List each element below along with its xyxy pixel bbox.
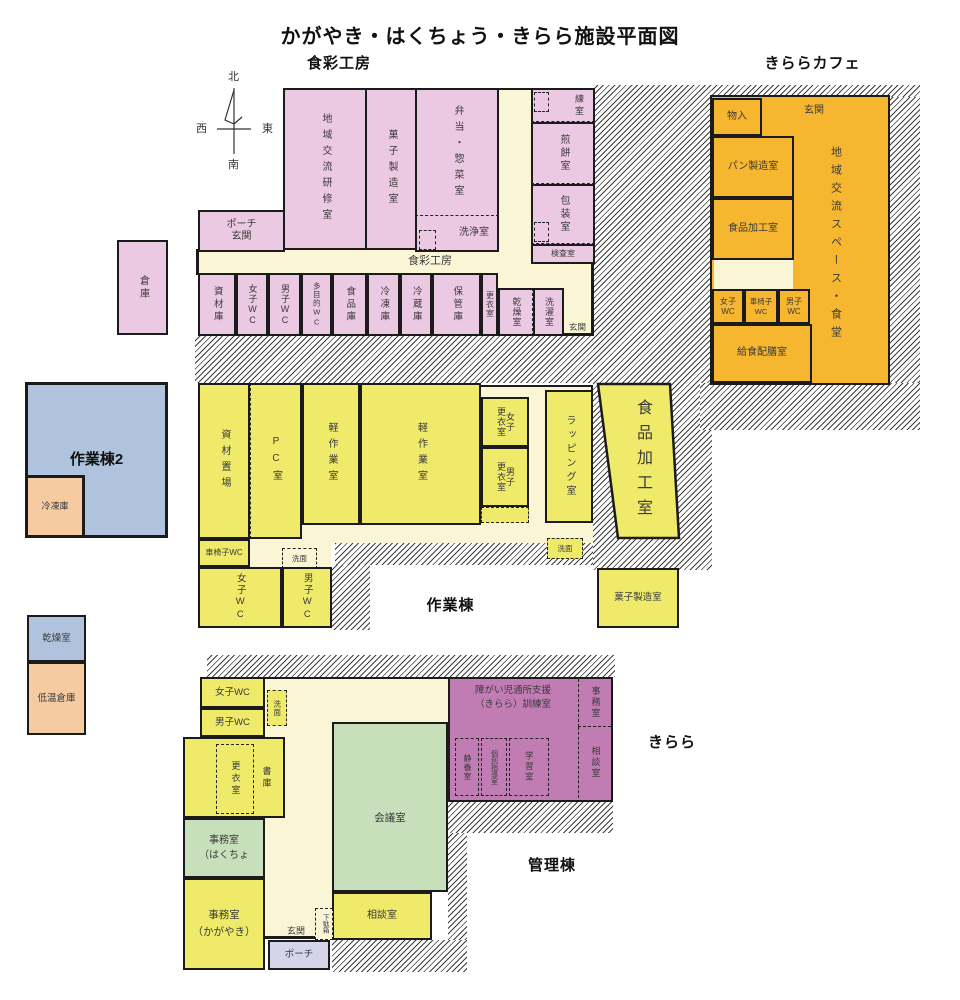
- room-reizoko: 冷蔵庫: [400, 273, 432, 336]
- room-joshi-koi: 女子 更衣室: [481, 397, 529, 447]
- room-shizai-okiba: 資材置場: [198, 383, 250, 539]
- label-kirara-cafe: きららカフェ: [760, 52, 865, 72]
- room-reitoko: 冷凍庫: [367, 273, 400, 336]
- hatch-area: [888, 97, 920, 383]
- room-shokuhinko: 食品庫: [332, 273, 367, 336]
- corridor: [265, 677, 448, 722]
- room-tamokuteki-wc: 多目的WC: [301, 273, 332, 336]
- room-gakushu: 学習室: [509, 738, 549, 796]
- room-kaigi: 会議室: [332, 722, 448, 892]
- corridor: [497, 88, 532, 250]
- room-annex-teion-soko: 低温倉庫: [27, 662, 86, 735]
- room-annex-kanso: 乾燥室: [27, 615, 86, 662]
- room-danshi-wc: 男子WC: [268, 273, 301, 336]
- room-bento-sozai: 弁当・惣菜室: [415, 88, 499, 217]
- room-kansoshitsu: 乾燥室: [498, 288, 533, 336]
- room-kurumaisu-wc: 車椅子WC: [198, 539, 250, 567]
- room-porch: ポーチ: [268, 940, 330, 970]
- room-senbei: 煎餅室: [531, 122, 595, 184]
- room-shokuhin-kako-label: 食品加工室: [622, 398, 662, 524]
- svg-text:南: 南: [228, 158, 239, 171]
- room-shokuhin-kako-cafe: 食品加工室: [712, 198, 794, 260]
- room-pc: PC室: [250, 383, 302, 539]
- room-kanri-senmen: 洗面: [267, 690, 287, 726]
- room-cafe-danshi-wc: 男子WC: [778, 289, 810, 324]
- room-chiiki-koryu-kenshu: 地域交流研修室: [283, 88, 367, 250]
- dashed-door-box: [419, 230, 436, 250]
- page-title: かがやき・はくちょう・きらら施設平面図: [0, 20, 960, 49]
- room-sagyoto-danshi-wc: 男子WC: [282, 567, 332, 628]
- room-kyushoku-haizen: 給食配膳室: [712, 324, 812, 383]
- room-kensa: 検査室: [531, 244, 595, 264]
- room-keisagyo-1: 軽作業室: [302, 383, 360, 525]
- room-kashi-seizo: 菓子製造室: [365, 88, 417, 250]
- room-kanri-koi: 更衣室: [216, 744, 254, 814]
- room-koishitsu: 更衣室: [481, 273, 498, 336]
- corridor: [529, 397, 545, 523]
- room-jimu-hakucho: 事務室 （はくちょ: [183, 818, 265, 878]
- room-soko: 倉庫: [117, 240, 168, 335]
- svg-text:西: 西: [196, 123, 207, 135]
- room-chiiki-koryu-space: 地域交流スペース・食堂: [815, 112, 855, 377]
- dashed-door-box: [534, 92, 549, 112]
- label-kanrito: 管理棟: [516, 854, 588, 874]
- room-kobetsu-shido: 個別指導室: [481, 738, 507, 796]
- room-hokanko: 保管庫: [432, 273, 481, 336]
- room-cafe-kurumaisu-wc: 車椅子WC: [744, 289, 778, 324]
- room-kunren: 障がい児通所支援 （きらら）訓練室: [452, 682, 574, 714]
- hatch-area: [332, 940, 467, 972]
- room-joshi-wc: 女子WC: [236, 273, 268, 336]
- genkan-label: 玄関: [562, 320, 593, 333]
- svg-text:東: 東: [262, 122, 273, 135]
- room-pan-seizo: パン製造室: [712, 136, 794, 198]
- room-kanri-joshi-wc: 女子WC: [200, 677, 265, 708]
- room-kirara-sodan: 相談室: [578, 727, 611, 798]
- cafe-corridor: [714, 260, 793, 289]
- room-sagyoto-kashi-seizo: 菓子製造室: [597, 568, 679, 628]
- dashed-door-box: [534, 222, 549, 242]
- room-senmen-right: 洗面: [547, 538, 583, 559]
- room-sagyoto2-reitoko: 冷凍庫: [25, 475, 85, 538]
- room-mononyu: 物入: [712, 98, 762, 136]
- room-sentakushitsu: 洗濯室: [533, 288, 564, 336]
- label-sagyoto: 作業棟: [413, 594, 488, 614]
- kanri-genkan-label: 玄関: [276, 923, 316, 937]
- room-shoko: 書庫: [254, 744, 278, 812]
- dashed-door-box: [481, 507, 529, 523]
- room-seiyo: 静養室: [455, 738, 479, 796]
- hatch-area: [207, 655, 615, 677]
- room-senmen-left: 洗面: [282, 548, 317, 569]
- room-keisagyo-2: 軽作業室: [360, 383, 481, 525]
- hatch-area: [448, 802, 613, 833]
- room-getabako: 下駄箱: [315, 908, 333, 940]
- compass-icon: 北 西 東 南: [190, 62, 282, 174]
- facility-floor-plan: かがやき・はくちょう・きらら施設平面図 食彩工房 きららカフェ 作業棟 きらら …: [0, 0, 960, 1000]
- corridor-label: 食彩工房: [388, 252, 472, 268]
- label-kirara: きらら: [642, 731, 702, 751]
- label-shokusai-kobo: 食彩工房: [294, 52, 384, 72]
- hatch-area: [700, 383, 920, 430]
- room-kanri-sodan: 相談室: [332, 892, 432, 940]
- room-jimu-kagayaki: 事務室 （かがやき）: [183, 878, 265, 970]
- room-shizaiko: 資材庫: [198, 273, 236, 336]
- svg-text:北: 北: [228, 70, 239, 83]
- hatch-area: [332, 565, 370, 630]
- room-cafe-joshi-wc: 女子WC: [712, 289, 744, 324]
- hatch-area: [195, 336, 593, 383]
- room-kirara-jimu: 事務室: [578, 679, 611, 727]
- room-porch-genkan: ポーチ 玄関: [198, 210, 285, 252]
- room-wrapping: ラッピング室: [545, 390, 593, 523]
- room-sagyoto-joshi-wc: 女子WC: [198, 567, 282, 628]
- room-kanri-danshi-wc: 男子WC: [200, 708, 265, 737]
- room-danshi-koi: 男子 更衣室: [481, 447, 529, 507]
